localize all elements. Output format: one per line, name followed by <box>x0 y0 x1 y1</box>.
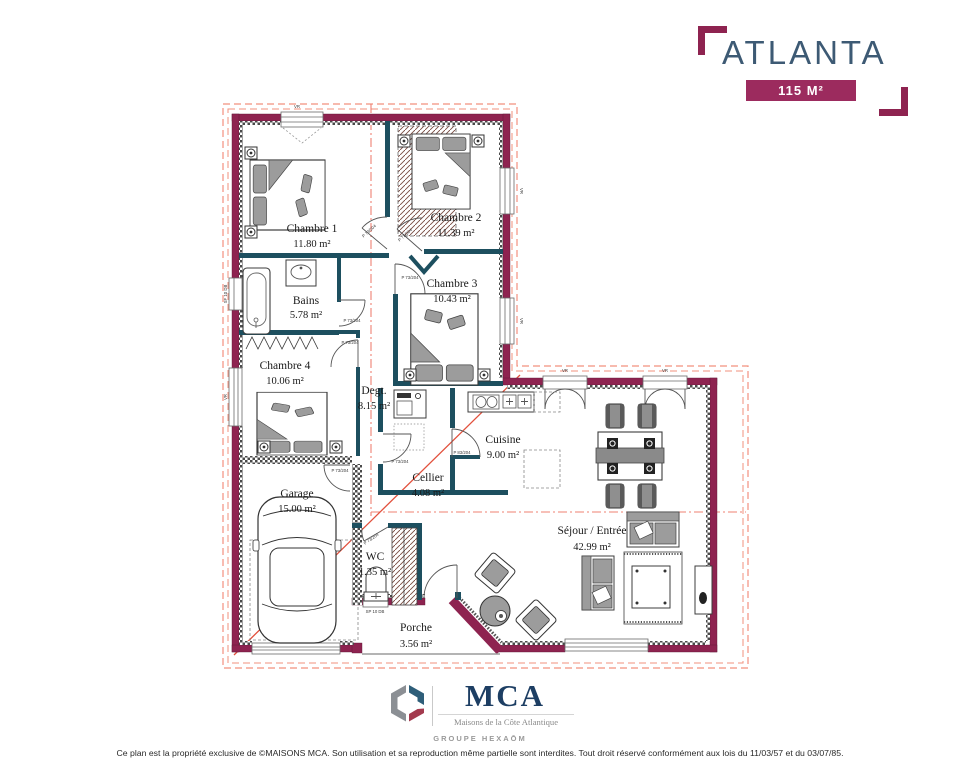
footer: MCA Maisons de la Côte Atlantique GROUPE… <box>0 682 960 734</box>
brand-divider <box>432 686 433 726</box>
corridor-chevron <box>410 256 438 272</box>
brand-row: MCA Maisons de la Côte Atlantique GROUPE… <box>360 682 600 734</box>
door-label: P 73/204 <box>361 223 378 239</box>
room-label-sejour: Séjour / Entrée <box>558 525 627 537</box>
bed-chambre-1 <box>250 160 325 230</box>
room-area-bains: 5.78 m² <box>290 310 322 321</box>
mca-cube-icon <box>388 684 426 726</box>
bed-chambre-2 <box>412 134 470 209</box>
room-area-garage: 15.00 m² <box>278 504 316 515</box>
room-area-chambre-3: 10.43 m² <box>433 294 471 305</box>
dining-set <box>596 404 664 508</box>
door-label: P 73/204 <box>343 318 361 323</box>
room-label-degt: Degt. <box>361 385 386 397</box>
room-area-chambre-4: 10.06 m² <box>266 376 304 387</box>
room-label-chambre-1: Chambre 1 <box>287 223 338 235</box>
door-label: P 73/204 <box>331 468 349 473</box>
room-area-wc: 1.35 m² <box>359 567 391 578</box>
room-area-chambre-1: 11.80 m² <box>293 239 330 250</box>
room-area-chambre-2: 11.39 m² <box>437 228 474 239</box>
window-label: VR <box>519 188 524 194</box>
room-label-porche: Porche <box>400 622 432 634</box>
room-label-cellier: Cellier <box>412 472 443 484</box>
window-label: SF 10 DB <box>223 285 228 304</box>
floor-plan: Chambre 1 11.80 m² Chambre 2 11.39 m² Ch… <box>0 0 960 768</box>
door-label: P 83/204 <box>453 450 471 455</box>
room-label-cuisine: Cuisine <box>485 434 520 446</box>
window-label: VR <box>662 368 668 373</box>
car <box>250 497 358 643</box>
room-area-sejour: 42.99 m² <box>573 542 611 553</box>
page: { "header": { "title": "ATLANTA", "area_… <box>0 0 960 768</box>
window-label: VR <box>294 104 300 109</box>
attic-ladder <box>392 528 417 605</box>
room-label-wc: WC <box>366 551 385 563</box>
room-label-chambre-2: Chambre 2 <box>431 212 482 224</box>
door-label: P 73/204 <box>363 531 380 545</box>
bed-chambre-3 <box>411 294 478 385</box>
copyright-text: Ce plan est la propriété exclusive de ©M… <box>0 748 960 758</box>
brand-group: GROUPE HEXAŌM <box>360 734 600 743</box>
door-label: P 73/204 <box>391 459 409 464</box>
room-area-porche: 3.56 m² <box>400 639 432 650</box>
room-area-cellier: 4.08 m² <box>412 488 444 499</box>
brand-name: MCA <box>440 678 570 714</box>
window-label: VR <box>519 318 524 324</box>
room-area-cuisine: 9.00 m² <box>487 450 519 461</box>
radiator <box>246 337 318 349</box>
window-label: VR <box>562 368 568 373</box>
room-label-chambre-4: Chambre 4 <box>260 360 311 372</box>
bathroom-sink <box>286 260 316 286</box>
room-label-garage: Garage <box>280 488 313 500</box>
brand-subtitle: Maisons de la Côte Atlantique <box>438 714 574 727</box>
room-area-degt: 8.15 m² <box>358 401 390 412</box>
window-label: VR <box>223 394 228 400</box>
bathtub <box>243 268 270 334</box>
window-label: SP 10 DB <box>366 609 385 614</box>
room-label-chambre-3: Chambre 3 <box>427 278 478 290</box>
door-label: P 73/204 <box>341 340 359 345</box>
door-label: P 73/204 <box>401 275 419 280</box>
room-label-bains: Bains <box>293 295 320 307</box>
